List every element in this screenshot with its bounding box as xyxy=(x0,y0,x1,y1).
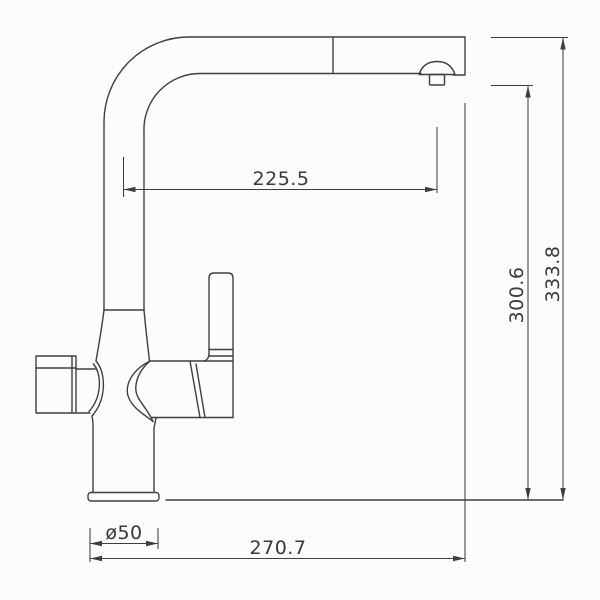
dimension-value: 333.8 xyxy=(542,246,564,303)
arrowhead-up xyxy=(525,86,530,98)
arrowhead-right xyxy=(453,556,465,561)
side-valve-knob xyxy=(36,356,76,413)
body-crescent-inner xyxy=(136,361,153,422)
body-right-profile xyxy=(144,310,150,361)
base-flange xyxy=(88,493,159,502)
housing-right-edge xyxy=(190,361,200,418)
dimension-value: ø50 xyxy=(105,522,142,544)
dimension-outlet-height: 300.6 xyxy=(491,86,533,501)
faucet-outline xyxy=(36,37,563,501)
dimension-base-diameter: ø50 xyxy=(90,522,158,562)
arrowhead-down xyxy=(525,488,530,500)
body-left-bulge-inner-arc xyxy=(89,364,99,412)
dimension-spout-reach: 225.5 xyxy=(124,127,438,197)
dimension-overall-height: 333.8 xyxy=(491,38,568,501)
arrowhead-down xyxy=(560,488,565,500)
handle-lever-foot-curve xyxy=(204,354,209,361)
dimension-value: 300.6 xyxy=(506,267,528,324)
body-left-profile xyxy=(92,310,104,493)
arrowhead-left xyxy=(90,556,102,561)
arrowhead-right xyxy=(425,187,437,192)
aerator-tip xyxy=(430,75,445,86)
dimension-value: 225.5 xyxy=(253,168,310,190)
arrowhead-up xyxy=(560,38,565,50)
handle-base-slant xyxy=(196,364,205,418)
arrowhead-right xyxy=(146,541,158,546)
body-crescent-outer xyxy=(127,361,153,422)
handle-lever xyxy=(209,273,233,418)
technical-drawing-canvas: 225.5 300.6 333.8 ø50 xyxy=(0,0,600,600)
aerator-dome xyxy=(419,62,455,75)
spout-inner-profile xyxy=(144,73,421,310)
arrowhead-left xyxy=(90,541,102,546)
base-column-right xyxy=(154,418,156,493)
dimension-annotations: 225.5 300.6 333.8 ø50 xyxy=(90,38,568,563)
arrowhead-left xyxy=(124,187,136,192)
dimension-value: 270.7 xyxy=(250,537,307,559)
